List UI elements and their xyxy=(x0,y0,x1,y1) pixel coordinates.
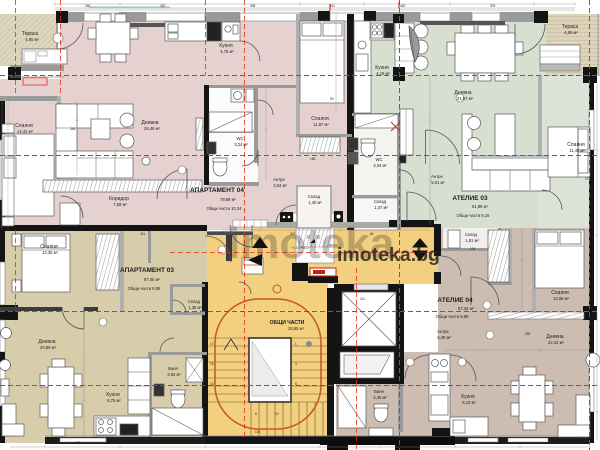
svg-text:17: 17 xyxy=(210,342,214,346)
svg-text:3: 3 xyxy=(295,362,297,366)
svg-text:165: 165 xyxy=(310,157,316,161)
svg-text:1,36 м²: 1,36 м² xyxy=(188,305,202,310)
svg-text:imoteka.bg: imoteka.bg xyxy=(337,244,440,266)
svg-text:305: 305 xyxy=(250,4,256,8)
svg-text:79,88 м²: 79,88 м² xyxy=(220,197,237,202)
svg-text:540: 540 xyxy=(300,441,306,445)
svg-text:260: 260 xyxy=(85,4,91,8)
svg-text:3,24 м²: 3,24 м² xyxy=(234,142,248,147)
svg-text:25: 25 xyxy=(585,177,589,181)
svg-text:Антре: Антре xyxy=(431,174,443,179)
svg-text:АПАРТАМЕНТ 04: АПАРТАМЕНТ 04 xyxy=(190,187,244,194)
svg-text:WC: WC xyxy=(376,157,383,162)
svg-text:124: 124 xyxy=(470,247,476,251)
svg-text:262: 262 xyxy=(525,332,531,336)
svg-text:4,75 м²: 4,75 м² xyxy=(220,49,234,54)
svg-text:13,36 м²: 13,36 м² xyxy=(42,250,59,255)
svg-text:375: 375 xyxy=(490,4,496,8)
svg-text:4,89 м²: 4,89 м² xyxy=(564,30,578,35)
svg-text:20,89 м²: 20,89 м² xyxy=(40,345,57,350)
svg-text:420: 420 xyxy=(400,4,406,8)
svg-text:87,05 м²: 87,05 м² xyxy=(144,277,161,282)
svg-text:Склад: Склад xyxy=(188,299,201,304)
svg-text:5,40 м²: 5,40 м² xyxy=(437,335,451,340)
svg-text:АТЕЛИЕ 04: АТЕЛИЕ 04 xyxy=(437,297,473,304)
svg-text:7,59 м²: 7,59 м² xyxy=(113,202,127,207)
svg-text:8,10 м²: 8,10 м² xyxy=(462,400,476,405)
svg-text:WC: WC xyxy=(237,136,244,141)
svg-text:1,91 м²: 1,91 м² xyxy=(465,238,479,243)
svg-text:29,46 м²: 29,46 м² xyxy=(144,126,161,131)
svg-text:411: 411 xyxy=(140,232,145,236)
svg-text:11,48 м²: 11,48 м² xyxy=(569,148,585,153)
svg-text:АТЕЛИЕ 03: АТЕЛИЕ 03 xyxy=(452,195,488,202)
svg-text:22,32 м²: 22,32 м² xyxy=(548,340,565,345)
svg-text:Склад: Склад xyxy=(374,199,387,204)
svg-text:Антре: Антре xyxy=(273,177,285,182)
svg-text:1,40 м²: 1,40 м² xyxy=(308,200,322,205)
svg-text:3,34 м²: 3,34 м² xyxy=(373,163,387,168)
svg-text:67,34 м²: 67,34 м² xyxy=(458,306,475,311)
svg-text:3,04 м²: 3,04 м² xyxy=(273,183,287,188)
svg-text:Баня: Баня xyxy=(374,389,384,394)
svg-text:5,75 м²: 5,75 м² xyxy=(107,398,121,403)
svg-text:15: 15 xyxy=(210,362,214,366)
svg-text:Общи части 10,34: Общи части 10,34 xyxy=(206,206,242,211)
svg-text:4,16 м²: 4,16 м² xyxy=(376,71,390,76)
svg-text:1,47 м²: 1,47 м² xyxy=(374,205,388,210)
svg-text:3,92 м²: 3,92 м² xyxy=(167,372,181,377)
svg-text:8: 8 xyxy=(255,412,257,416)
svg-text:13,06 м²: 13,06 м² xyxy=(553,296,570,301)
svg-text:90: 90 xyxy=(330,97,334,101)
svg-text:Склад: Склад xyxy=(465,232,478,237)
svg-text:Общи части 8,85: Общи части 8,85 xyxy=(128,286,161,291)
svg-text:Антре: Антре xyxy=(437,329,449,334)
svg-text:28,95 м²: 28,95 м² xyxy=(288,326,305,331)
svg-text:345: 345 xyxy=(70,127,76,131)
svg-text:320: 320 xyxy=(160,4,166,8)
svg-text:14,42 м²: 14,42 м² xyxy=(17,129,34,134)
svg-text:Общи части 8,16: Общи части 8,16 xyxy=(457,213,490,218)
svg-text:111: 111 xyxy=(360,297,365,301)
svg-text:5,01 м²: 5,01 м² xyxy=(431,180,445,185)
svg-text:13: 13 xyxy=(210,382,214,386)
svg-text:11,87 м²: 11,87 м² xyxy=(313,122,329,127)
svg-text:10: 10 xyxy=(275,412,279,416)
svg-text:4,80 м²: 4,80 м² xyxy=(25,37,39,42)
svg-text:1: 1 xyxy=(295,342,297,346)
svg-text:61,88 м²: 61,88 м² xyxy=(472,204,489,209)
svg-text:182: 182 xyxy=(75,441,81,445)
svg-text:Общи части 8,89: Общи части 8,89 xyxy=(436,314,469,319)
svg-text:21,57 м²: 21,57 м² xyxy=(457,96,474,101)
svg-text:3,36 м²: 3,36 м² xyxy=(373,395,387,400)
svg-text:АПАРТАМЕНТ 03: АПАРТАМЕНТ 03 xyxy=(120,267,174,274)
svg-text:420: 420 xyxy=(500,441,506,445)
svg-text:111: 111 xyxy=(330,4,335,8)
svg-text:Склад: Склад xyxy=(308,194,321,199)
svg-text:5: 5 xyxy=(295,382,297,386)
svg-text:Баня: Баня xyxy=(168,366,178,371)
svg-text:120: 120 xyxy=(255,430,261,434)
